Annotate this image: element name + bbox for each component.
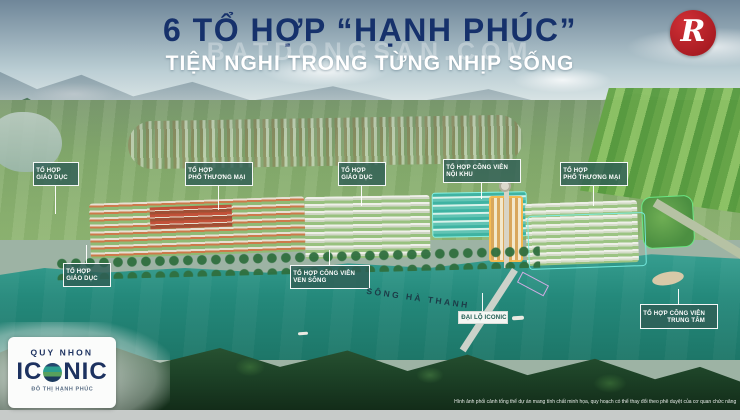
zone-label-education-1: TỔ HỢPGIÁO DỤC: [33, 162, 79, 186]
leader-line: [86, 245, 87, 263]
zone-label-central-park: TỔ HỢP CÔNG VIÊNTRUNG TÂM: [640, 304, 718, 329]
leader-line: [481, 183, 482, 199]
project-name-main: IC NIC: [16, 360, 107, 384]
agency-logo-letter: R: [681, 14, 706, 49]
leader-line: [678, 289, 679, 304]
zone-outline-cyan: [527, 212, 647, 270]
project-name-suffix: NIC: [63, 360, 107, 384]
poster-title: 6 TỔ HỢP “HẠNH PHÚC” TIỆN NGHI TRONG TỪN…: [0, 13, 740, 76]
poster-root: TỔ HỢPGIÁO DỤC TỔ HỢPPHỐ THƯƠNG MẠI TỔ H…: [0, 0, 740, 420]
leader-line: [593, 186, 594, 206]
leader-line: [55, 186, 56, 214]
bottom-gray-bar: [0, 410, 740, 420]
zone-label-education-2: TỔ HỢPGIÁO DỤC: [338, 162, 386, 186]
wave-circle-icon: [43, 363, 62, 382]
leader-line: [218, 186, 219, 210]
housing-rows-red: [150, 205, 233, 230]
project-logo-card: QUY NHON IC NIC ĐÔ THỊ HẠNH PHÚC: [8, 337, 116, 408]
zone-label-riverside-park: TỔ HỢP CÔNG VIÊNVEN SÔNG: [290, 265, 370, 289]
title-line-1: 6 TỔ HỢP “HẠNH PHÚC”: [0, 13, 740, 48]
leader-line: [482, 293, 483, 311]
agency-logo: R: [670, 10, 716, 56]
zone-label-education-3: TỔ HỢPGIÁO DỤC: [63, 263, 111, 287]
project-tagline: ĐÔ THỊ HẠNH PHÚC: [31, 386, 93, 392]
leader-line: [361, 186, 362, 206]
zone-label-commercial-1: TỔ HỢPPHỐ THƯƠNG MẠI: [185, 162, 253, 186]
boat: [512, 316, 524, 321]
project-name-prefix: IC: [16, 360, 42, 384]
zone-label-iconic-boulevard: ĐẠI LỘ ICONIC: [458, 311, 508, 324]
disclaimer-text: Hình ảnh phối cảnh tổng thể dự án mang t…: [454, 399, 736, 405]
zone-label-internal-park: TỔ HỢP CÔNG VIÊNNỘI KHU: [443, 159, 521, 183]
zone-label-commercial-2: TỔ HỢPPHỐ THƯƠNG MẠI: [560, 162, 628, 186]
title-line-2: TIỆN NGHI TRONG TỪNG NHỊP SỐNG: [0, 52, 740, 76]
leader-line: [329, 250, 330, 265]
project-name-top: QUY NHON: [31, 349, 94, 358]
